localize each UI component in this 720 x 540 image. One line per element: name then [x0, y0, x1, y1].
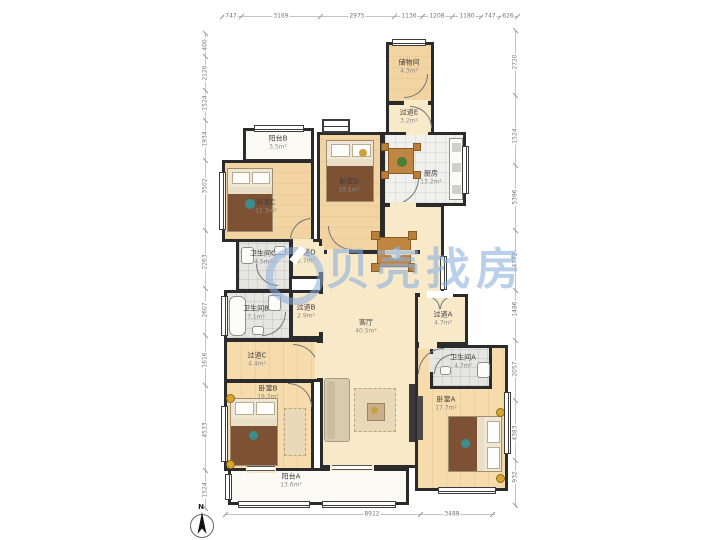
room-label-bath-a: 卫生间A4.7m²: [450, 354, 476, 371]
sliding-door: [332, 465, 372, 470]
rug-icon: [354, 388, 396, 432]
doorway-opening: [317, 246, 324, 272]
chair-icon: [408, 231, 417, 240]
bay-window: [322, 119, 350, 133]
doorway-opening: [404, 100, 428, 106]
dim-label: 626: [501, 13, 514, 20]
rug-icon: [284, 408, 306, 456]
room-label-bath-c: 卫生间C4.5m²: [250, 250, 276, 267]
room-balcony-a: [228, 468, 409, 505]
toilet-icon: [268, 295, 281, 311]
doorway-opening: [327, 249, 349, 254]
dim-label: 1208: [428, 13, 445, 20]
room-label-hallway-d: 过道D2.7m²: [296, 249, 315, 266]
floor-patch: [420, 250, 441, 255]
room-label-bedroom-a: 卧室A17.7m²: [435, 396, 457, 413]
room-label-kitchen: 厨房13.2m²: [420, 170, 442, 187]
bed-icon: [448, 416, 502, 472]
dim-label: 2057: [512, 360, 519, 377]
dim-label: 3488: [443, 511, 460, 518]
dim-label: 2120: [202, 64, 209, 81]
floor-patch: [415, 254, 421, 293]
room-label-balcony-b: 阳台B3.5m²: [269, 135, 288, 152]
window: [438, 487, 496, 494]
dim-label: 5396: [512, 188, 519, 205]
doorway-opening: [293, 239, 313, 244]
chair-icon: [371, 263, 380, 272]
doorway-opening: [315, 343, 324, 378]
room-label-balcony-a: 阳台A13.6m²: [280, 473, 302, 490]
room-label-hallway-e: 过道E3.2m²: [400, 109, 418, 126]
dim-label: 4383: [512, 424, 519, 441]
dim-label: 1180: [458, 13, 475, 20]
room-label-hallway-c: 过道C4.4m²: [248, 352, 267, 369]
dim-label: 1524: [202, 481, 209, 498]
dim-label: 1934: [202, 130, 209, 147]
chair-icon: [381, 143, 389, 151]
doorway-opening: [419, 342, 437, 349]
dim-label: 2720: [512, 53, 519, 70]
bed-icon: [230, 398, 278, 466]
window: [322, 501, 396, 508]
dim-label: 1136: [400, 13, 417, 20]
window: [221, 296, 228, 336]
nightstand-icon: [226, 394, 235, 403]
room-label-bedroom-d: 卧室D10.1m²: [338, 178, 360, 195]
room-label-hallway-a: 过道A4.7m²: [434, 311, 453, 328]
north-compass-icon: [188, 511, 216, 539]
window: [219, 172, 226, 230]
floorplan-canvas: 储物间4.3m² 过道E3.2m² 阳台B3.5m² 卧室C11.3m² 卧室D…: [0, 0, 720, 540]
doorway-opening: [429, 354, 434, 372]
nightstand-icon: [496, 474, 505, 483]
dim-label: 747: [224, 13, 237, 20]
dim-label: 1486: [512, 300, 519, 317]
room-label-storage: 储物间4.3m²: [399, 59, 420, 76]
dim-label: 747: [483, 13, 496, 20]
chair-icon: [381, 171, 389, 179]
kitchen-appliances-icon: [449, 138, 463, 200]
toilet-icon: [477, 362, 490, 378]
room-label-bedroom-c: 卧室C11.3m²: [255, 199, 277, 216]
dim-label: 400: [202, 38, 209, 51]
tv-icon: [409, 384, 415, 442]
dim-label: 3502: [202, 177, 209, 194]
room-label-bedroom-b: 卧室B19.2m²: [257, 385, 279, 402]
tv-icon: [417, 396, 423, 440]
dim-label: 8912: [363, 511, 380, 518]
chair-icon: [413, 143, 421, 151]
chair-icon: [371, 231, 380, 240]
window: [462, 146, 469, 194]
window: [440, 256, 447, 290]
window: [392, 39, 426, 46]
window: [238, 501, 310, 508]
dim-label: 1524: [512, 127, 519, 144]
window: [504, 392, 511, 454]
sofa-icon: [324, 378, 350, 442]
dim-label: 4772: [512, 251, 519, 268]
room-label-hallway-b: 过道B2.9m²: [297, 304, 316, 321]
entry-opening: [427, 291, 453, 298]
window: [254, 125, 304, 132]
kitchen-table-icon: [388, 148, 414, 174]
dim-label: 2607: [202, 301, 209, 318]
dim-label: 4533: [202, 421, 209, 438]
doorway-opening: [390, 202, 416, 208]
dim-label: 1524: [202, 94, 209, 111]
room-label-bath-b: 卫生间B7.1m²: [243, 305, 269, 322]
dim-label: 2975: [348, 13, 365, 20]
dim-label: 3169: [272, 13, 289, 20]
doorway-opening: [317, 294, 324, 332]
dim-label: 932: [512, 470, 519, 483]
window: [221, 406, 228, 462]
dim-label: 1616: [202, 351, 209, 368]
dim-label: 2263: [202, 253, 209, 270]
floor-patch: [385, 250, 415, 255]
sliding-door: [247, 466, 275, 471]
doorway-opening: [406, 129, 428, 135]
window: [225, 474, 232, 500]
north-label: N: [198, 503, 204, 511]
room-label-living: 客厅40.5m²: [355, 319, 377, 336]
